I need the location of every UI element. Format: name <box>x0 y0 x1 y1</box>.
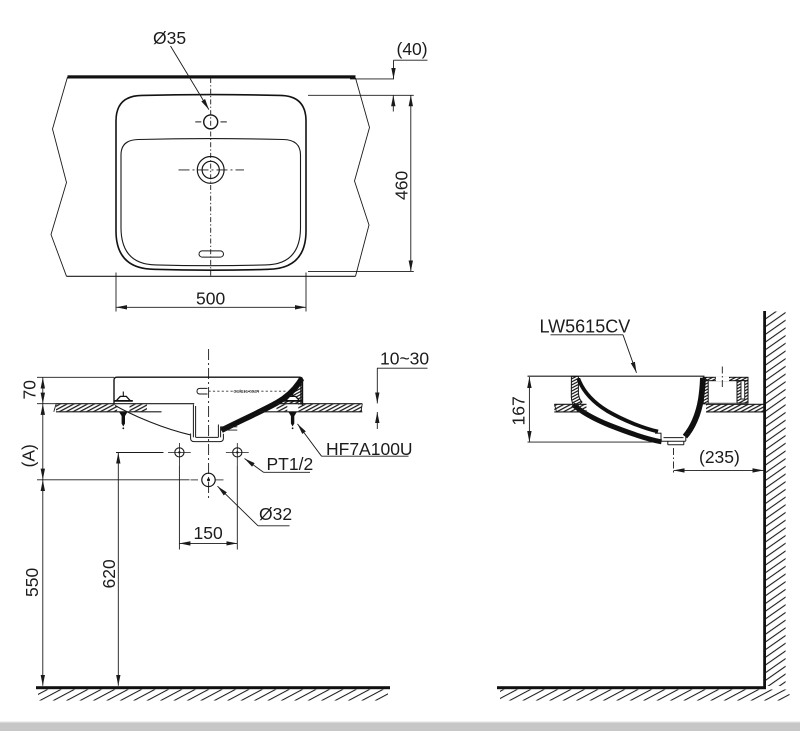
svg-text:70: 70 <box>20 380 40 400</box>
svg-text:550: 550 <box>22 568 42 597</box>
svg-text:500: 500 <box>196 289 225 309</box>
svg-text:LW5615CV: LW5615CV <box>540 317 631 337</box>
svg-text:(235): (235) <box>699 447 740 467</box>
svg-text:167: 167 <box>509 396 529 425</box>
svg-text:620: 620 <box>99 559 119 588</box>
svg-text:CSfB15-00JR: CSfB15-00JR <box>234 389 260 394</box>
svg-text:460: 460 <box>392 171 412 200</box>
svg-text:(A): (A) <box>19 444 39 467</box>
svg-text:150: 150 <box>194 523 223 543</box>
svg-text:Ø32: Ø32 <box>259 504 292 524</box>
svg-text:(40): (40) <box>397 39 428 59</box>
svg-text:Ø35: Ø35 <box>153 28 186 48</box>
svg-text:PT1/2: PT1/2 <box>267 454 314 474</box>
svg-text:10~30: 10~30 <box>380 349 429 369</box>
